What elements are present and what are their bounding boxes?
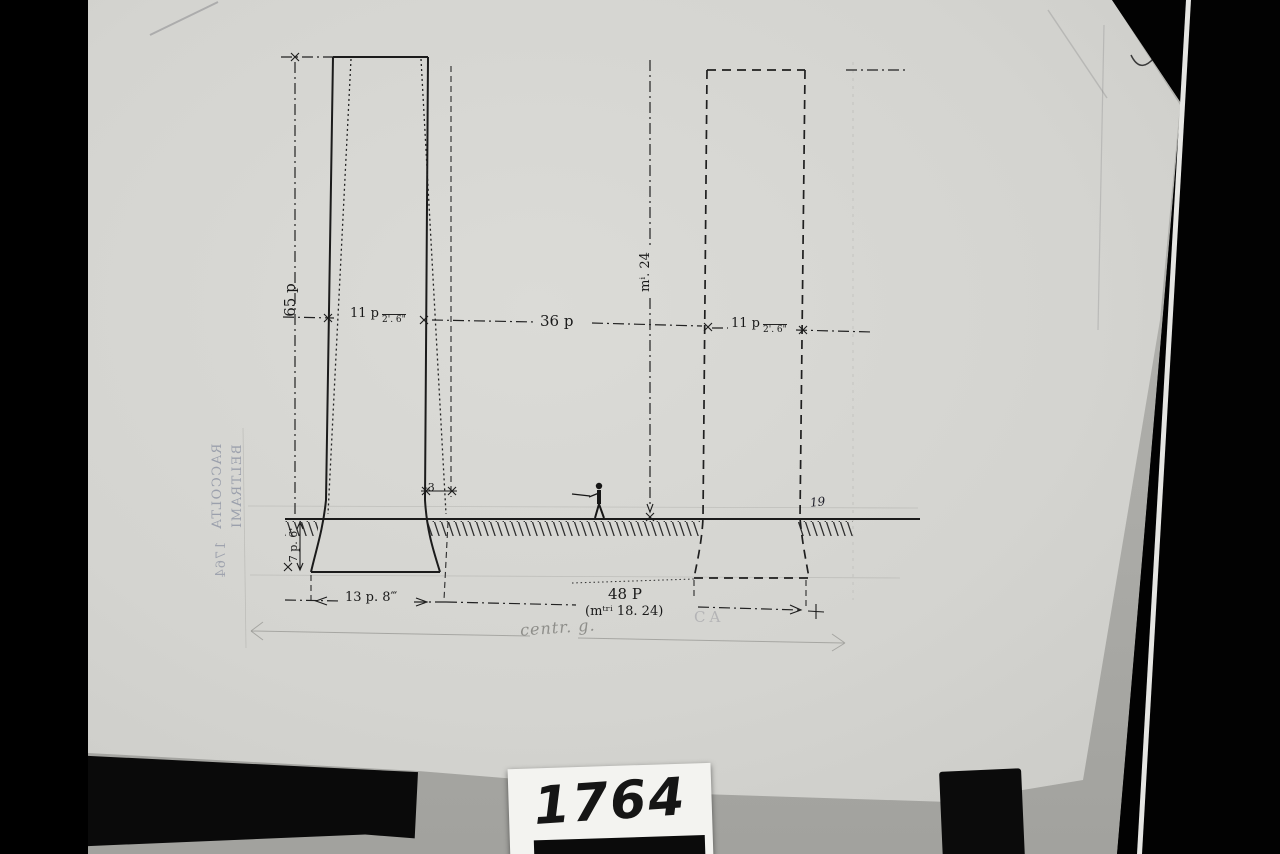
stamp-line1: RACCOLTA: [208, 427, 228, 547]
dim-11p-right-label: 11 p2'. 6": [731, 316, 787, 331]
dim-11p-right-main: 11 p: [731, 316, 760, 331]
stamp-line2: BELTRAMI: [228, 427, 248, 547]
ground-line: [285, 519, 920, 536]
handwritten-19-note: 19: [809, 494, 826, 510]
dim-11p-left-sub: 2'. 6": [382, 314, 406, 325]
faded-stamp-trace: CA: [694, 608, 724, 626]
black-mask-bottom-right: [939, 768, 1025, 854]
dim-11p-left-label: 11 p2'. 6": [350, 306, 406, 321]
dim-36p-label: 36 p: [540, 312, 573, 330]
scale-figure: [572, 483, 604, 518]
catalog-number: 1764: [507, 765, 714, 838]
dim-48p-metric-label: (mᵗʳⁱ 18. 24): [585, 604, 663, 619]
dim-minus3-label: -3: [424, 481, 435, 494]
collection-stamp-year: 1764: [214, 530, 234, 590]
collection-stamp-mirrored: RACCOLTA BELTRAMI: [158, 427, 298, 547]
dim-11p-right-sub: 2'. 6": [763, 324, 787, 335]
dim-m24-label: mⁱ. 24: [637, 240, 653, 304]
pencil-guides: [243, 62, 918, 651]
card-black-bar: [534, 835, 706, 854]
dim-11p-left-main: 11 p: [350, 306, 379, 321]
dim-48p-label: 48 P: [608, 585, 642, 603]
dim-13p8-label: 13 p. 8‴: [345, 590, 397, 605]
dim-65p-label: 65 p: [282, 270, 298, 330]
catalog-number-card: 1764: [508, 763, 714, 854]
archival-photo: 65 p 11 p2'. 6" 36 p 11 p2'. 6" mⁱ. 24 -…: [0, 0, 1280, 854]
